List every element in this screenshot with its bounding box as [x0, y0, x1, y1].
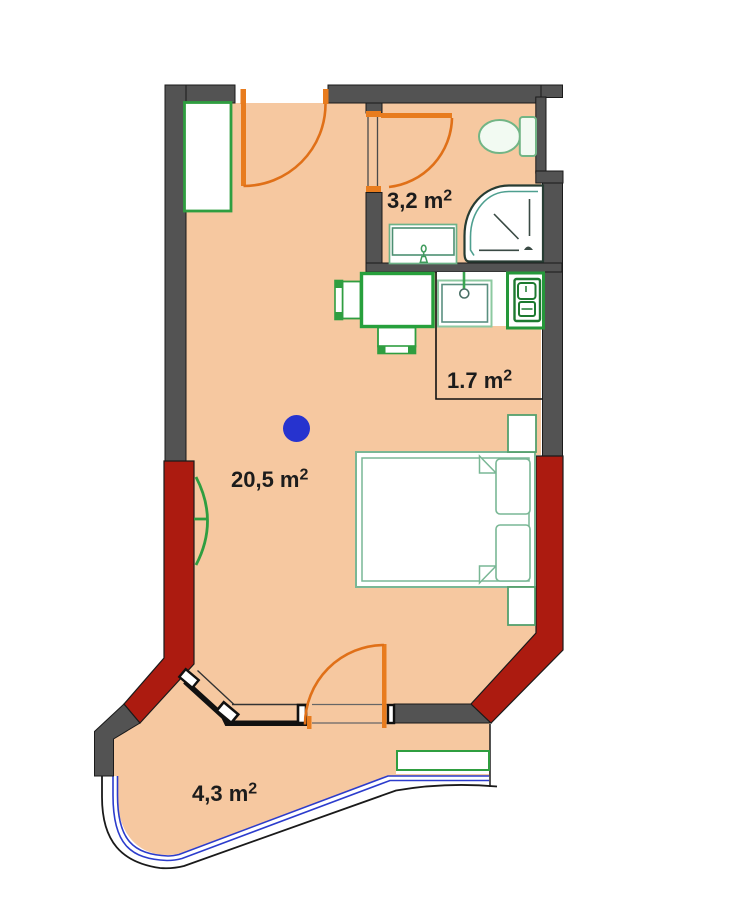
svg-text:4,3 m2: 4,3 m2 — [192, 781, 257, 807]
svg-text:1.7 m2: 1.7 m2 — [447, 368, 512, 394]
svg-text:3,2 m2: 3,2 m2 — [387, 188, 452, 214]
svg-text:20,5 m2: 20,5 m2 — [231, 467, 309, 493]
